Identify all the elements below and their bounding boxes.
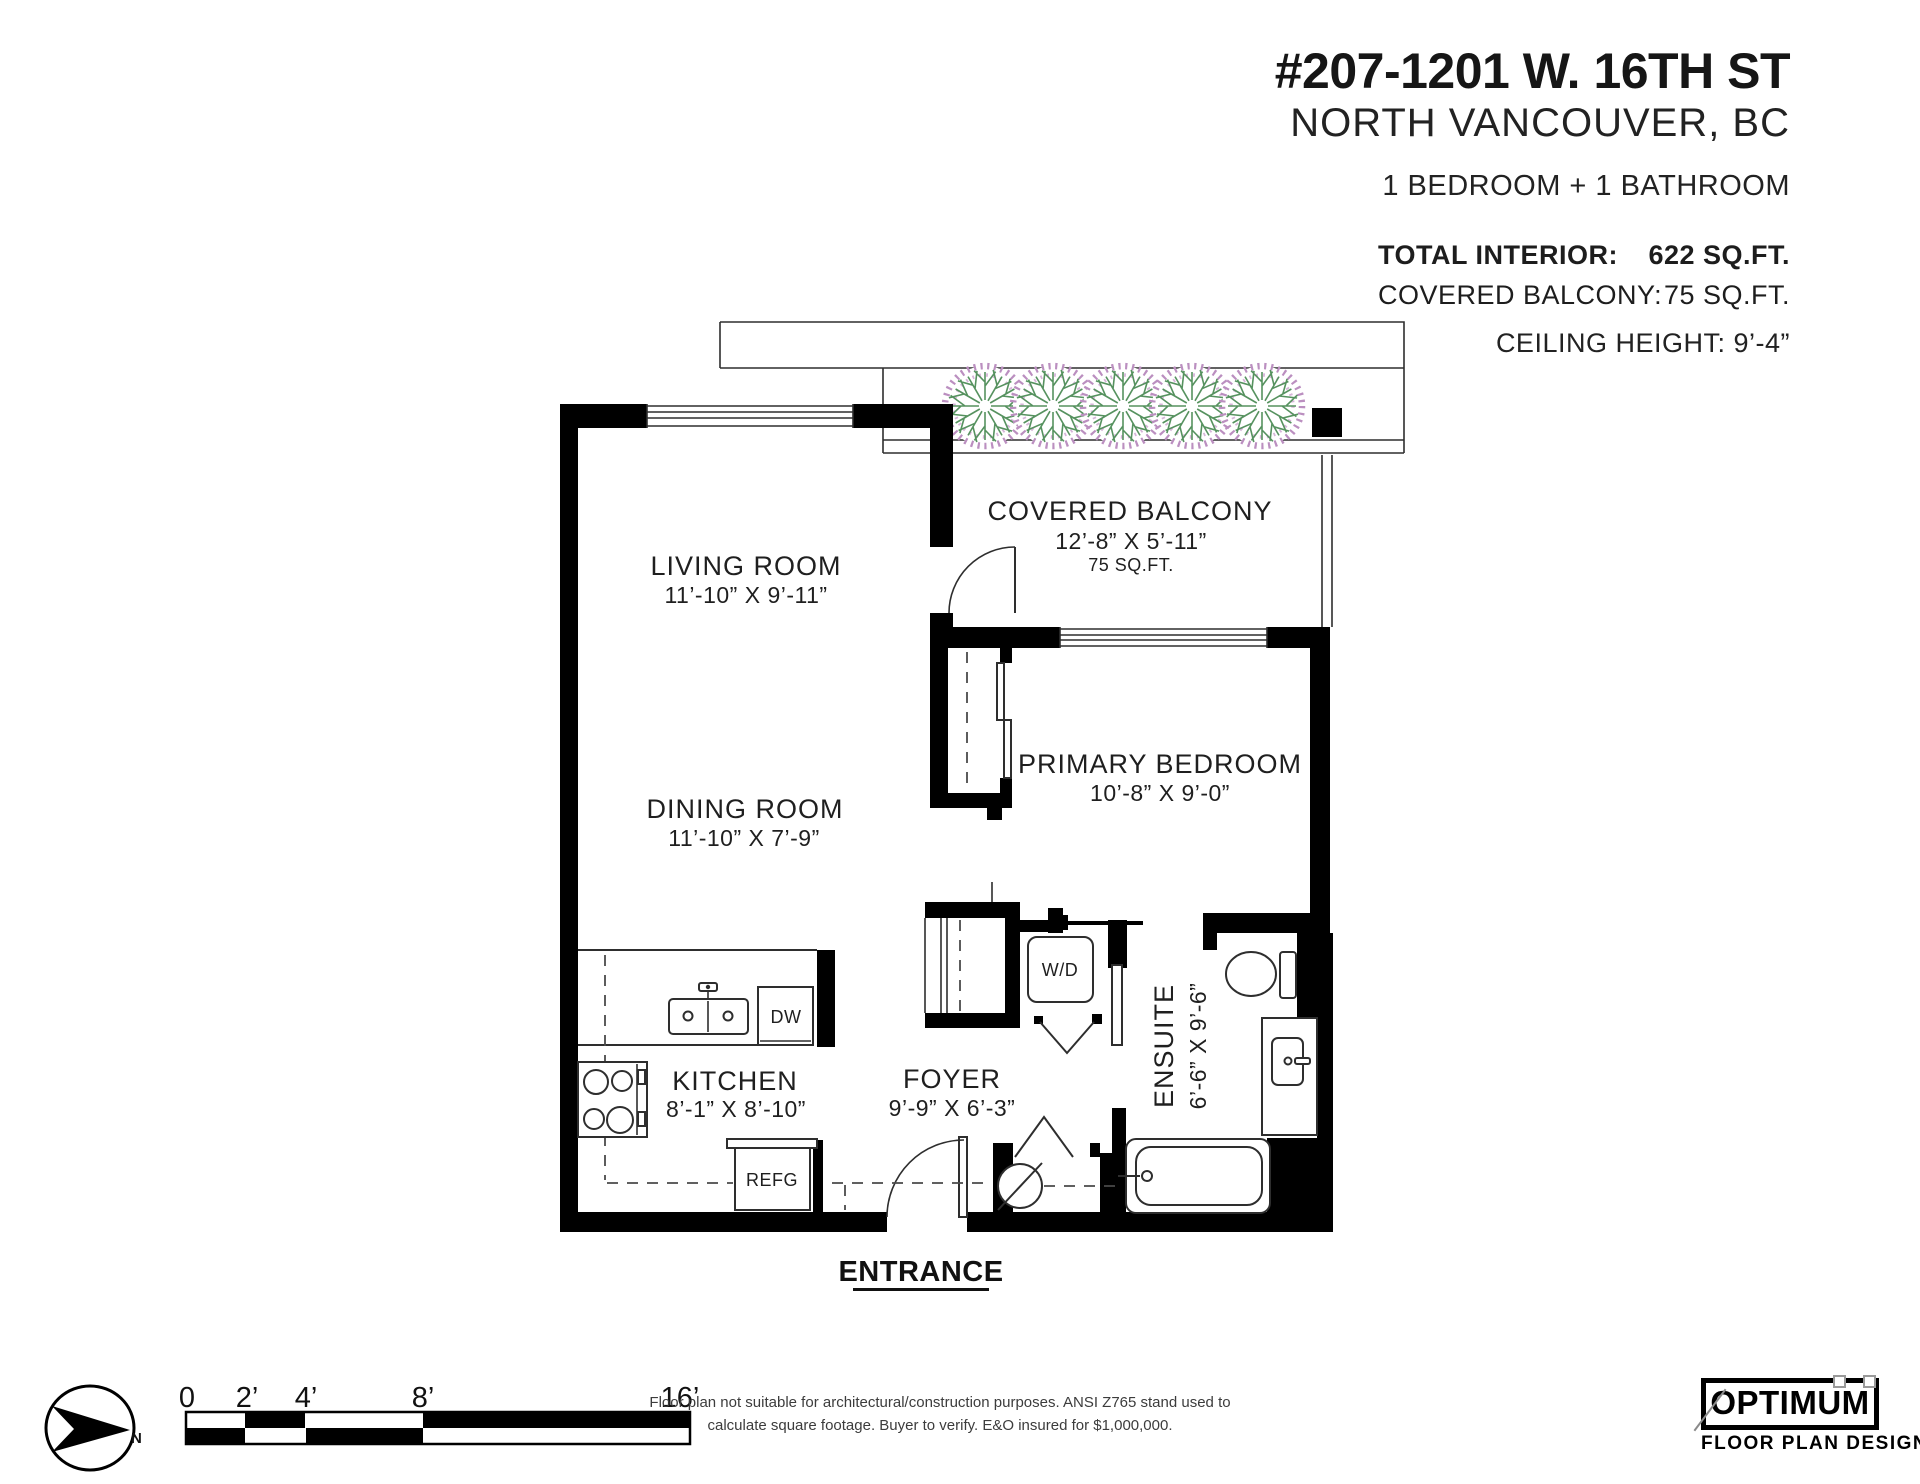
dining-room-dims: 11’-10” X 7’-9” [668, 825, 820, 851]
living-room-label: LIVING ROOM [650, 551, 841, 581]
dining-room-label: DINING ROOM [647, 794, 844, 824]
refrigerator-label: REFG [746, 1170, 798, 1190]
planter-tree-icon [1152, 366, 1232, 446]
logo-brand: OPTIMUM [1710, 1384, 1869, 1421]
bathtub [1118, 1139, 1270, 1213]
living-room-dims: 11’-10” X 9’-11” [664, 582, 827, 608]
north-label: N [131, 1430, 142, 1447]
washer-dryer-label: W/D [1042, 960, 1079, 980]
stove [578, 1062, 647, 1137]
bedroom-closet-sliding-door [997, 648, 1012, 793]
scale-tick: 8’ [412, 1382, 435, 1414]
toilet [1226, 952, 1296, 998]
bedroom-sliding-door [1058, 915, 1143, 930]
living-room-window [647, 404, 853, 428]
foyer-label: FOYER [903, 1064, 1001, 1094]
brand-logo: OPTIMUM FLOOR PLAN DESIGNS [1701, 1378, 1879, 1455]
disclaimer: Floor plan not suitable for architectura… [640, 1392, 1240, 1437]
primary-bedroom-dims: 10’-8” X 9’-0” [1090, 780, 1230, 806]
exhaust-fan-symbol [998, 1163, 1042, 1210]
ensuite-pocket-door [1112, 965, 1122, 1045]
tape-square-icon [1833, 1375, 1846, 1388]
vanity-sink [1262, 1018, 1317, 1135]
refrigerator: REFG [727, 1139, 817, 1210]
planter-tree-icon [1222, 366, 1302, 446]
planter-tree-icon [1013, 366, 1093, 446]
north-arrow-icon: N [46, 1386, 142, 1470]
kitchen-sink [669, 983, 748, 1034]
ensuite-label: ENSUITE [1149, 984, 1179, 1108]
kitchen-label: KITCHEN [672, 1066, 798, 1096]
floor-plan-drawing: DW REFG W/D [0, 0, 1920, 1484]
primary-bedroom-label: PRIMARY BEDROOM [1018, 749, 1302, 779]
ensuite-dims: 6’-6” X 9’-6” [1185, 983, 1211, 1110]
covered-balcony-label: COVERED BALCONY [987, 496, 1272, 526]
dishwasher-label: DW [771, 1007, 802, 1027]
washer-dryer: W/D [1028, 937, 1093, 1002]
logo-box: OPTIMUM [1701, 1378, 1879, 1430]
disclaimer-line1: Floor plan not suitable for architectura… [640, 1392, 1240, 1415]
dishwasher: DW [758, 987, 813, 1045]
laundry-bifold-door [1040, 1022, 1094, 1053]
disclaimer-line2: calculate square footage. Buyer to verif… [640, 1415, 1240, 1438]
covered-balcony-dims: 12’-8” X 5’-11” [1055, 528, 1207, 554]
floor-plan-page: #207-1201 W. 16TH ST NORTH VANCOUVER, BC… [0, 0, 1920, 1484]
scale-tick: 0 [179, 1382, 195, 1414]
logo-tagline: FLOOR PLAN DESIGNS [1701, 1433, 1879, 1455]
foyer-dims: 9’-9” X 6’-3” [889, 1095, 1016, 1121]
entrance-label-group: ENTRANCE [838, 1256, 1003, 1291]
scale-bar: 0 2’ 4’ 8’ 16’ [179, 1382, 699, 1444]
entrance-door [887, 1137, 967, 1217]
kitchen-dims: 8’-1” X 8’-10” [666, 1096, 806, 1122]
foyer-closet [925, 882, 992, 1013]
planter-tree-icon [1083, 366, 1163, 446]
entrance-label: ENTRANCE [838, 1256, 1003, 1288]
scale-tick: 2’ [236, 1382, 259, 1414]
scale-tick: 4’ [295, 1382, 318, 1414]
bathroom-bifold-door [1015, 1117, 1073, 1157]
covered-balcony-area: 75 SQ.FT. [1088, 555, 1174, 575]
bedroom-window [1060, 627, 1267, 648]
balcony-door [949, 547, 1015, 613]
tape-square-icon [1863, 1375, 1876, 1388]
planter-trees [945, 366, 1302, 446]
